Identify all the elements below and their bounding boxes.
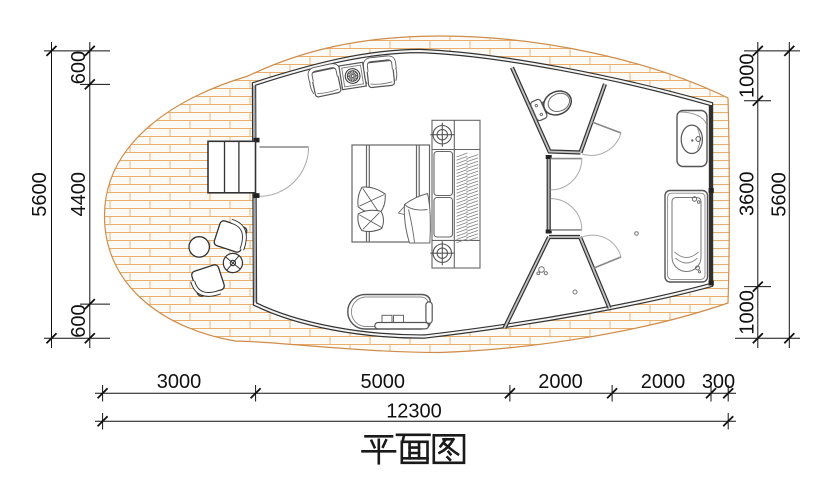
svg-text:2000: 2000 bbox=[641, 371, 686, 393]
svg-text:600: 600 bbox=[68, 304, 90, 337]
svg-text:5600: 5600 bbox=[769, 172, 791, 217]
svg-text:600: 600 bbox=[68, 51, 90, 84]
svg-text:3000: 3000 bbox=[157, 371, 202, 393]
svg-text:5000: 5000 bbox=[361, 371, 406, 393]
svg-text:4400: 4400 bbox=[68, 172, 90, 217]
svg-text:300: 300 bbox=[702, 371, 735, 393]
svg-text:5600: 5600 bbox=[29, 172, 51, 217]
svg-text:12300: 12300 bbox=[386, 401, 442, 423]
svg-text:3600: 3600 bbox=[737, 171, 759, 216]
svg-text:1000: 1000 bbox=[737, 290, 759, 335]
svg-text:1000: 1000 bbox=[737, 54, 759, 99]
svg-text:2000: 2000 bbox=[538, 371, 583, 393]
